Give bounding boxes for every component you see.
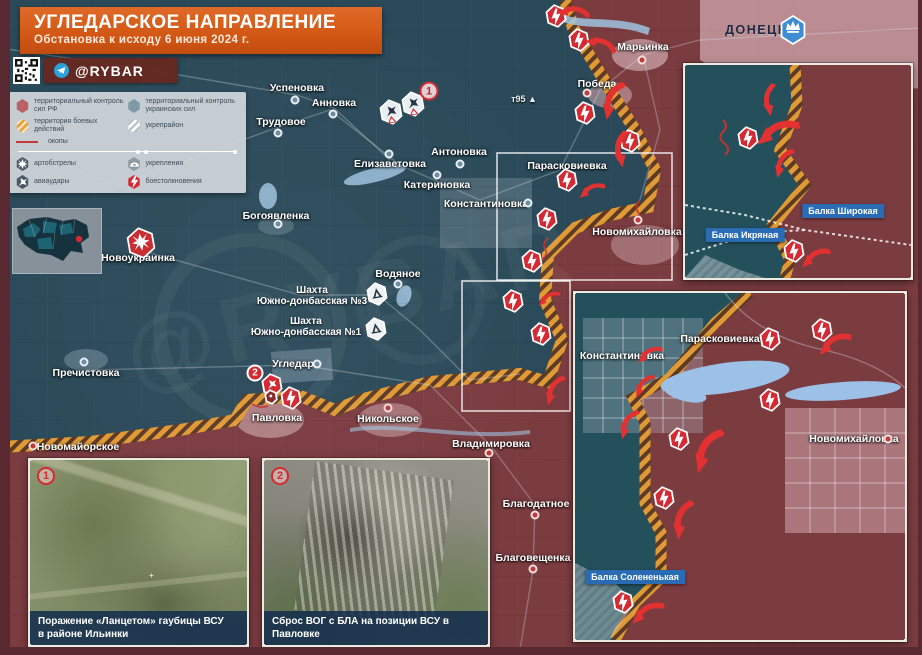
fortified-area-swatch (128, 119, 141, 133)
combat-zone-swatch (16, 119, 29, 133)
legend-item-ua-control: территориальный контроль украинских сил (128, 98, 240, 114)
attack-arrow (628, 372, 661, 403)
legend-item-fortified-area: укрепрайон (128, 118, 240, 134)
inset-map-novomikhailovka: КонстантиновкаПарасковиевкаНовомихайловк… (573, 291, 907, 642)
corner-mark (246, 644, 249, 647)
corner-mark (910, 277, 913, 280)
corner-mark (487, 644, 490, 647)
attack-arrow (753, 116, 803, 153)
clash-legend-icon (128, 175, 141, 189)
map-legend: территориальный контроль сил РФ территор… (9, 92, 246, 193)
corner-mark (262, 458, 265, 461)
clash-icon (757, 325, 783, 352)
corner-mark (487, 458, 490, 461)
ua-control-swatch (128, 99, 141, 113)
balka-tag: Балка Широкая (802, 204, 884, 218)
legend-item-artillery: артобстрелы (16, 157, 128, 171)
attack-arrow (581, 28, 619, 63)
artillery-icon (16, 157, 29, 171)
inset-map-balka: Балка ШирокаяБалка Икряная (683, 63, 913, 280)
telegram-icon (54, 63, 69, 78)
qr-pattern (15, 59, 38, 82)
trench-line-swatch (16, 141, 38, 143)
attack-arrow (592, 78, 638, 125)
corner-mark (910, 63, 913, 66)
airstrike-legend-icon (16, 175, 29, 189)
crown-icon (783, 19, 803, 35)
corner-mark (683, 277, 686, 280)
attack-arrow (537, 372, 574, 409)
page-title: УГЛЕДАРСКОЕ НАПРАВЛЕНИЕ (34, 12, 370, 33)
attack-arrow (634, 344, 666, 369)
photo-caption: Поражение «Ланцетом» гаубицы ВСУ в район… (30, 611, 247, 645)
inset2-content: КонстантиновкаПарасковиевкаНовомихайловк… (575, 293, 905, 640)
legend-item-airstrikes: авиаудары (16, 175, 128, 189)
corner-mark (904, 291, 907, 294)
corner-mark (246, 458, 249, 461)
title-banner: УГЛЕДАРСКОЕ НАПРАВЛЕНИЕ Обстановка к исх… (20, 7, 382, 54)
legend-item-fortifications: укрепления (128, 157, 240, 171)
corner-mark (573, 639, 576, 642)
corner-mark (28, 644, 31, 647)
settlement-marker (884, 435, 893, 444)
corner-mark (904, 639, 907, 642)
ru-control-swatch (16, 99, 29, 113)
attack-arrow (554, 0, 591, 29)
photo-number-badge: 1 (37, 467, 55, 485)
photo-caption: Сброс ВОГ с БЛА на позиции ВСУ в Павловк… (264, 611, 488, 645)
page-subtitle: Обстановка к исходу 6 июня 2024 г. (34, 34, 370, 46)
corner-mark (683, 63, 686, 66)
balka-tag: Балка Солененькая (585, 570, 685, 584)
clash-icon (651, 484, 677, 511)
channel-name: @RYBAR (75, 63, 144, 79)
legend-divider (18, 151, 237, 152)
settlement-label: Парасковиевка (680, 333, 759, 345)
balka-tag: Балка Икряная (706, 228, 785, 242)
channel-bar: @RYBAR (44, 58, 178, 83)
photo-lancet-strike: + Поражение «Ланцетом» гаубицы ВСУ в рай… (28, 458, 249, 647)
attack-arrow (577, 181, 608, 204)
attack-arrow (682, 425, 738, 481)
photo-vog-drop: Сброс ВОГ с БЛА на позиции ВСУ в Павловк… (262, 458, 490, 647)
attack-arrow (757, 81, 787, 118)
map-poster: @RYBAR УспеновкаАнновкаТрудовоеЕлизавето… (0, 0, 922, 655)
photo-number-badge: 2 (271, 467, 289, 485)
clash-icon (757, 386, 783, 413)
legend-item-trenches: окопы (16, 138, 128, 146)
target-bracket: + (118, 548, 184, 600)
inset1-content: Балка ШирокаяБалка Икряная (685, 65, 911, 278)
legend-item-clashes: боестолкновения (128, 175, 240, 189)
legend-item-ru-control: территориальный контроль сил РФ (16, 98, 128, 114)
corner-mark (28, 458, 31, 461)
attack-arrow (535, 289, 562, 310)
clash-icon (666, 425, 692, 452)
attack-arrow (611, 406, 648, 443)
elevation-marker: т95 ▲ (511, 94, 537, 104)
corner-mark (262, 644, 265, 647)
ukraine-minimap (12, 208, 102, 274)
corner-mark (573, 291, 576, 294)
qr-code (13, 57, 40, 84)
attack-arrow (607, 129, 641, 171)
legend-item-combat-zone: территория боевых действий (16, 118, 128, 134)
fortification-icon (128, 157, 141, 171)
donetsk-city-emblem-icon (779, 15, 807, 45)
